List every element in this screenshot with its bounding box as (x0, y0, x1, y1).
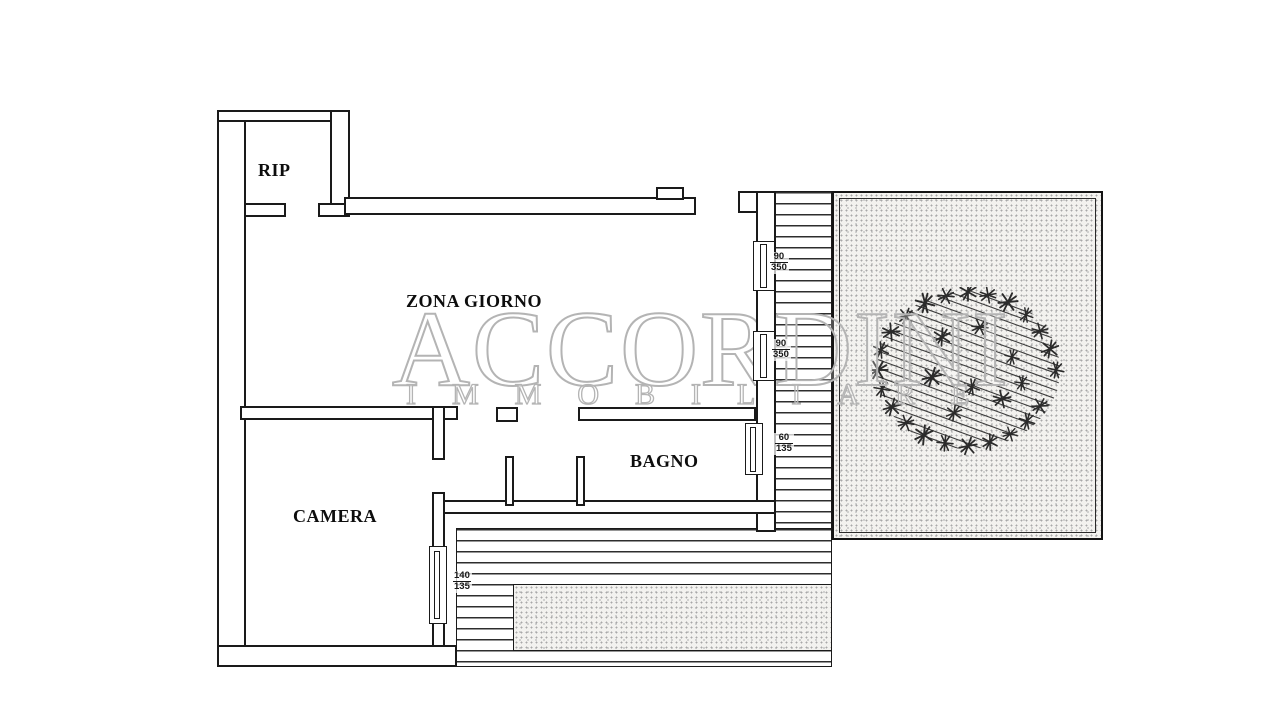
room-label-bagno: BAGNO (630, 451, 699, 472)
room-label-rip: RIP (258, 160, 291, 181)
dimension-label-living-1: 90 350 (769, 252, 789, 274)
dimension-height: 135 (453, 582, 471, 592)
dimension-height: 350 (770, 263, 788, 273)
dimension-height: 350 (772, 350, 790, 360)
window-glass (760, 334, 767, 377)
wall-top-notch (656, 187, 684, 200)
window-glass (760, 244, 767, 287)
wall-closet-stub-2 (576, 456, 585, 506)
wall-mid-center (496, 407, 518, 422)
wall-top-main (344, 197, 696, 215)
dimension-label-bedroom: 140 135 (452, 571, 472, 593)
watermark-subtitle: IMMOBILIARE (406, 380, 1005, 410)
bathroom-window (745, 423, 763, 475)
deck-stipple-inset (513, 584, 832, 651)
wall-bagno-top (578, 407, 756, 421)
bedroom-window (429, 546, 447, 624)
wall-mid-left (240, 406, 458, 420)
dimension-height: 135 (775, 444, 793, 454)
wall-camera-right-upper (432, 406, 445, 460)
dimension-label-bathroom: 60 135 (774, 433, 794, 455)
room-label-zona-giorno: ZONA GIORNO (406, 291, 542, 312)
floor-plan: ACCORDINI IMMOBILIARE (0, 0, 1280, 725)
dimension-label-living-2: 90 350 (771, 339, 791, 361)
wall-closet-stub-1 (505, 456, 514, 506)
window-glass (750, 427, 756, 472)
room-label-camera: CAMERA (293, 506, 377, 527)
wall-left (217, 110, 246, 667)
window-glass (434, 551, 440, 619)
wall-rip-bottom-left (244, 203, 286, 217)
wall-camera-bottom (217, 645, 457, 667)
wall-lower-bottom (441, 500, 776, 514)
